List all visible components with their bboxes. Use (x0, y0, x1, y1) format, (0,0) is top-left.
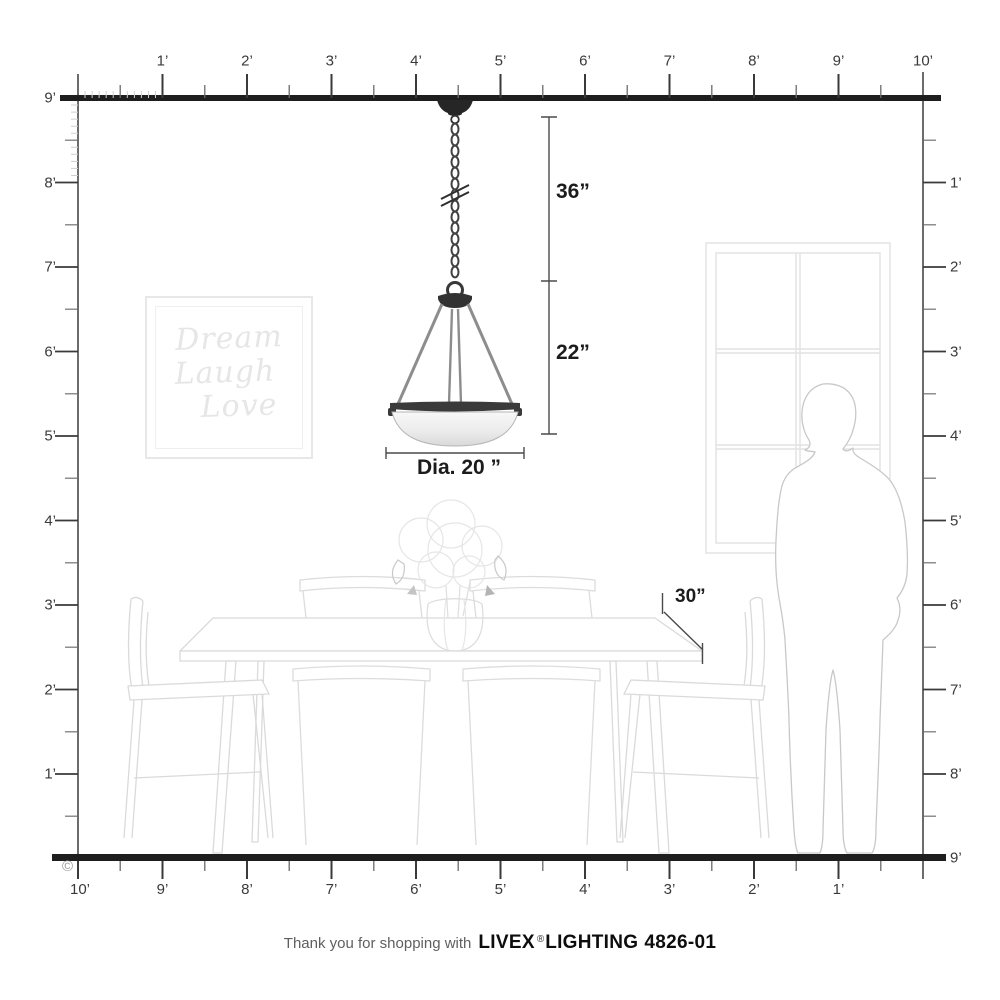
bottom-ruler-label-8ft: 8’ (241, 881, 253, 898)
top-ruler-label-3ft: 3’ (326, 53, 338, 70)
glass-bowl-shade (392, 412, 518, 446)
left-ruler-label-6ft: 6’ (44, 343, 56, 360)
wall-art-frame: Dream Laugh Love (145, 296, 313, 459)
bottom-ruler-label-7ft: 7’ (326, 881, 338, 898)
right-chair-sketch (620, 597, 769, 838)
top-ruler-label-9ft: 9’ (833, 53, 845, 70)
footer-model-number: 4826-01 (644, 932, 716, 953)
shade-rim (390, 402, 520, 412)
copyright-symbol: © (62, 858, 73, 875)
right-ruler-label-1ft: 1’ (950, 174, 962, 191)
fixture-cup (438, 293, 472, 308)
right-ruler-label-2ft: 2’ (950, 259, 962, 276)
fixture-height-dimension-label: 22” (556, 341, 590, 365)
left-ruler-label-1ft: 1’ (44, 766, 56, 783)
left-chair-sketch (124, 597, 273, 838)
back-chairs-sketch (293, 577, 600, 846)
bottom-ruler-label-1ft: 1’ (833, 881, 845, 898)
left-ruler-label-2ft: 2’ (44, 681, 56, 698)
flower-vase-sketch (392, 500, 506, 651)
top-ruler-label-2ft: 2’ (241, 53, 253, 70)
support-rods (398, 304, 512, 404)
bottom-ruler-label-3ft: 3’ (664, 881, 676, 898)
footer-caption: Thank you for shopping withLIVEX®LIGHTIN… (0, 932, 1000, 954)
dimension-diagram: Dream Laugh Love (0, 0, 1000, 1000)
right-ruler-label-6ft: 6’ (950, 597, 962, 614)
scene-artwork (0, 0, 1000, 1000)
fixture-ring (448, 283, 463, 298)
top-ruler-label-4ft: 4’ (410, 53, 422, 70)
right-ruler-ticks (923, 140, 946, 816)
left-ruler-label-7ft: 7’ (44, 259, 56, 276)
canopy-loop (451, 116, 459, 124)
window-sketch (706, 243, 890, 553)
top-ruler-label-1ft: 1’ (157, 53, 169, 70)
wall-art-text-line3: Love (156, 387, 321, 427)
footer-thankyou-text: Thank you for shopping with (284, 935, 472, 952)
wall-art-text-line2: Laugh (142, 353, 307, 393)
ceiling-canopy (437, 100, 473, 114)
right-ruler-label-4ft: 4’ (950, 428, 962, 445)
left-ruler-label-9ft: 9’ (44, 90, 56, 107)
left-ruler-ticks (55, 105, 78, 816)
right-ruler-label-5ft: 5’ (950, 512, 962, 529)
bottom-ruler-ticks (78, 861, 881, 879)
top-ruler-label-5ft: 5’ (495, 53, 507, 70)
ceiling-line (60, 95, 941, 101)
dimension-lines (386, 117, 703, 664)
right-ruler-label-3ft: 3’ (950, 343, 962, 360)
hanging-chain (452, 124, 459, 278)
left-ruler-label-5ft: 5’ (44, 428, 56, 445)
shade-diameter-dimension-label: Dia. 20 ” (417, 456, 501, 480)
right-ruler-label-8ft: 8’ (950, 766, 962, 783)
top-ruler-label-10ft: 10’ (913, 53, 933, 70)
registered-trademark-icon: ® (537, 934, 544, 945)
person-silhouette (776, 384, 908, 853)
left-ruler-label-3ft: 3’ (44, 597, 56, 614)
footer-brand-name: LIVEX (478, 932, 534, 953)
top-ruler-ticks (85, 74, 881, 98)
wall-art-text-line1: Dream (146, 319, 311, 359)
right-ruler-label-9ft: 9’ (950, 850, 962, 867)
left-ruler-label-8ft: 8’ (44, 174, 56, 191)
table-depth-dimension-label: 30” (675, 586, 706, 608)
bottom-ruler-label-2ft: 2’ (748, 881, 760, 898)
top-ruler-label-6ft: 6’ (579, 53, 591, 70)
right-ruler-label-7ft: 7’ (950, 681, 962, 698)
pendant-light (388, 100, 522, 446)
bottom-ruler-label-5ft: 5’ (495, 881, 507, 898)
left-ruler-label-4ft: 4’ (44, 512, 56, 529)
bottom-ruler-label-9ft: 9’ (157, 881, 169, 898)
bottom-ruler-label-6ft: 6’ (410, 881, 422, 898)
chain-break-mark (441, 185, 469, 206)
top-ruler-label-8ft: 8’ (748, 53, 760, 70)
top-ruler-label-7ft: 7’ (664, 53, 676, 70)
chain-drop-dimension-label: 36” (556, 180, 590, 204)
bottom-ruler-label-10ft: 10’ (70, 881, 90, 898)
dining-table-sketch (180, 618, 702, 853)
bottom-ruler-label-4ft: 4’ (579, 881, 591, 898)
floor-line (52, 854, 946, 861)
footer-brand-suffix: LIGHTING (545, 932, 638, 953)
